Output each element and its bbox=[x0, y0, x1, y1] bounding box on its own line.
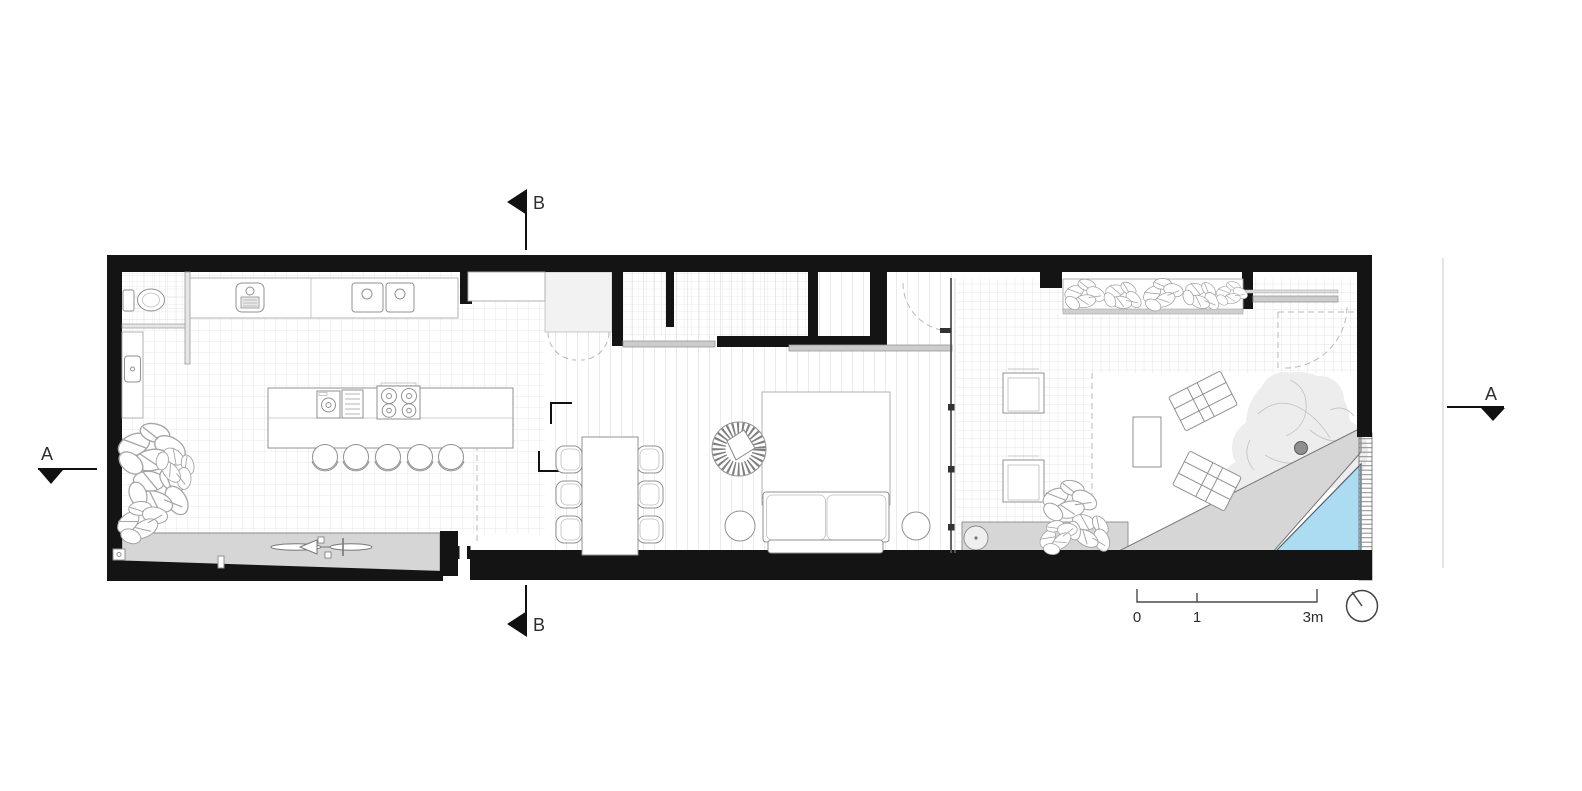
gate-latch bbox=[113, 549, 125, 560]
entry-sliding-gate bbox=[1253, 296, 1338, 302]
mullion bbox=[948, 404, 955, 411]
closet-wall bbox=[612, 272, 623, 346]
section-marker-a-left: A bbox=[38, 444, 97, 484]
scale-tick-0: 0 bbox=[1133, 609, 1141, 626]
hand-basin bbox=[125, 356, 141, 382]
kitchen-counter bbox=[190, 278, 458, 318]
hall-sliding-door bbox=[789, 345, 952, 351]
courtyard-wall-stub bbox=[1040, 255, 1062, 288]
sofa bbox=[763, 492, 889, 553]
dining-table bbox=[582, 437, 638, 555]
hall-wall-left bbox=[808, 272, 818, 347]
bathroom-floor bbox=[623, 272, 808, 336]
bath-partition-wall bbox=[666, 272, 674, 327]
courtyard-armchair bbox=[1003, 456, 1044, 502]
section-marker-b-bottom: B bbox=[507, 585, 545, 637]
tree-trunk bbox=[1295, 442, 1308, 455]
gate-wall-stub bbox=[1242, 255, 1253, 309]
wc-partition bbox=[185, 272, 190, 364]
wall-step bbox=[440, 531, 458, 576]
hall-wall-right bbox=[870, 272, 887, 347]
tall-cabinet bbox=[468, 272, 545, 301]
walkway-post bbox=[218, 556, 224, 568]
patio-table bbox=[1133, 417, 1161, 467]
section-label-b-bottom: B bbox=[533, 615, 545, 635]
kitchen-island bbox=[268, 383, 513, 448]
bar-stool bbox=[343, 445, 369, 471]
side-table bbox=[725, 511, 755, 541]
floor-plan-page: B B A A 0 1 3m bbox=[0, 0, 1582, 791]
section-label-a-left: A bbox=[41, 444, 53, 464]
bar-stool bbox=[375, 445, 401, 471]
scale-bar bbox=[1137, 589, 1317, 602]
oven bbox=[342, 390, 363, 418]
dining-chairs-right bbox=[637, 446, 663, 543]
kitchen-sink bbox=[352, 283, 414, 312]
dining-set bbox=[556, 437, 663, 555]
door-jamb bbox=[456, 546, 460, 559]
area-rug bbox=[762, 392, 890, 505]
washing-machine bbox=[317, 391, 340, 418]
bar-stool bbox=[407, 445, 433, 471]
scale-tick-1: 1 bbox=[1193, 609, 1201, 626]
floor-plan-drawing: B B A A 0 1 3m bbox=[0, 0, 1582, 791]
door-handle bbox=[940, 328, 951, 333]
top-wall bbox=[107, 255, 1372, 272]
courtyard-armchair bbox=[1003, 369, 1044, 413]
bathroom-sliding-door bbox=[623, 341, 715, 347]
section-marker-b-top: B bbox=[507, 189, 545, 250]
mullion bbox=[948, 524, 955, 531]
section-label-a-right: A bbox=[1485, 384, 1497, 404]
door-jamb bbox=[467, 546, 471, 559]
floor-drain-dot bbox=[974, 536, 977, 539]
bar-stool bbox=[312, 445, 338, 471]
section-label-b-top: B bbox=[533, 193, 545, 213]
bar-stool bbox=[438, 445, 464, 471]
dining-chairs-left bbox=[556, 446, 582, 543]
wc-partition-2 bbox=[122, 324, 185, 328]
mullion bbox=[948, 466, 955, 473]
north-indicator-icon bbox=[1347, 591, 1378, 622]
section-marker-a-right: A bbox=[1447, 384, 1505, 421]
toilet bbox=[123, 289, 165, 311]
planter bbox=[1063, 271, 1250, 321]
closet bbox=[545, 272, 612, 332]
coffee-machine bbox=[236, 283, 264, 312]
spiral-rug bbox=[712, 422, 766, 476]
side-table bbox=[902, 512, 930, 540]
right-wall bbox=[1357, 255, 1372, 437]
left-wall bbox=[107, 255, 122, 562]
scale-tick-3m: 3m bbox=[1303, 609, 1324, 626]
cooktop bbox=[377, 383, 420, 419]
